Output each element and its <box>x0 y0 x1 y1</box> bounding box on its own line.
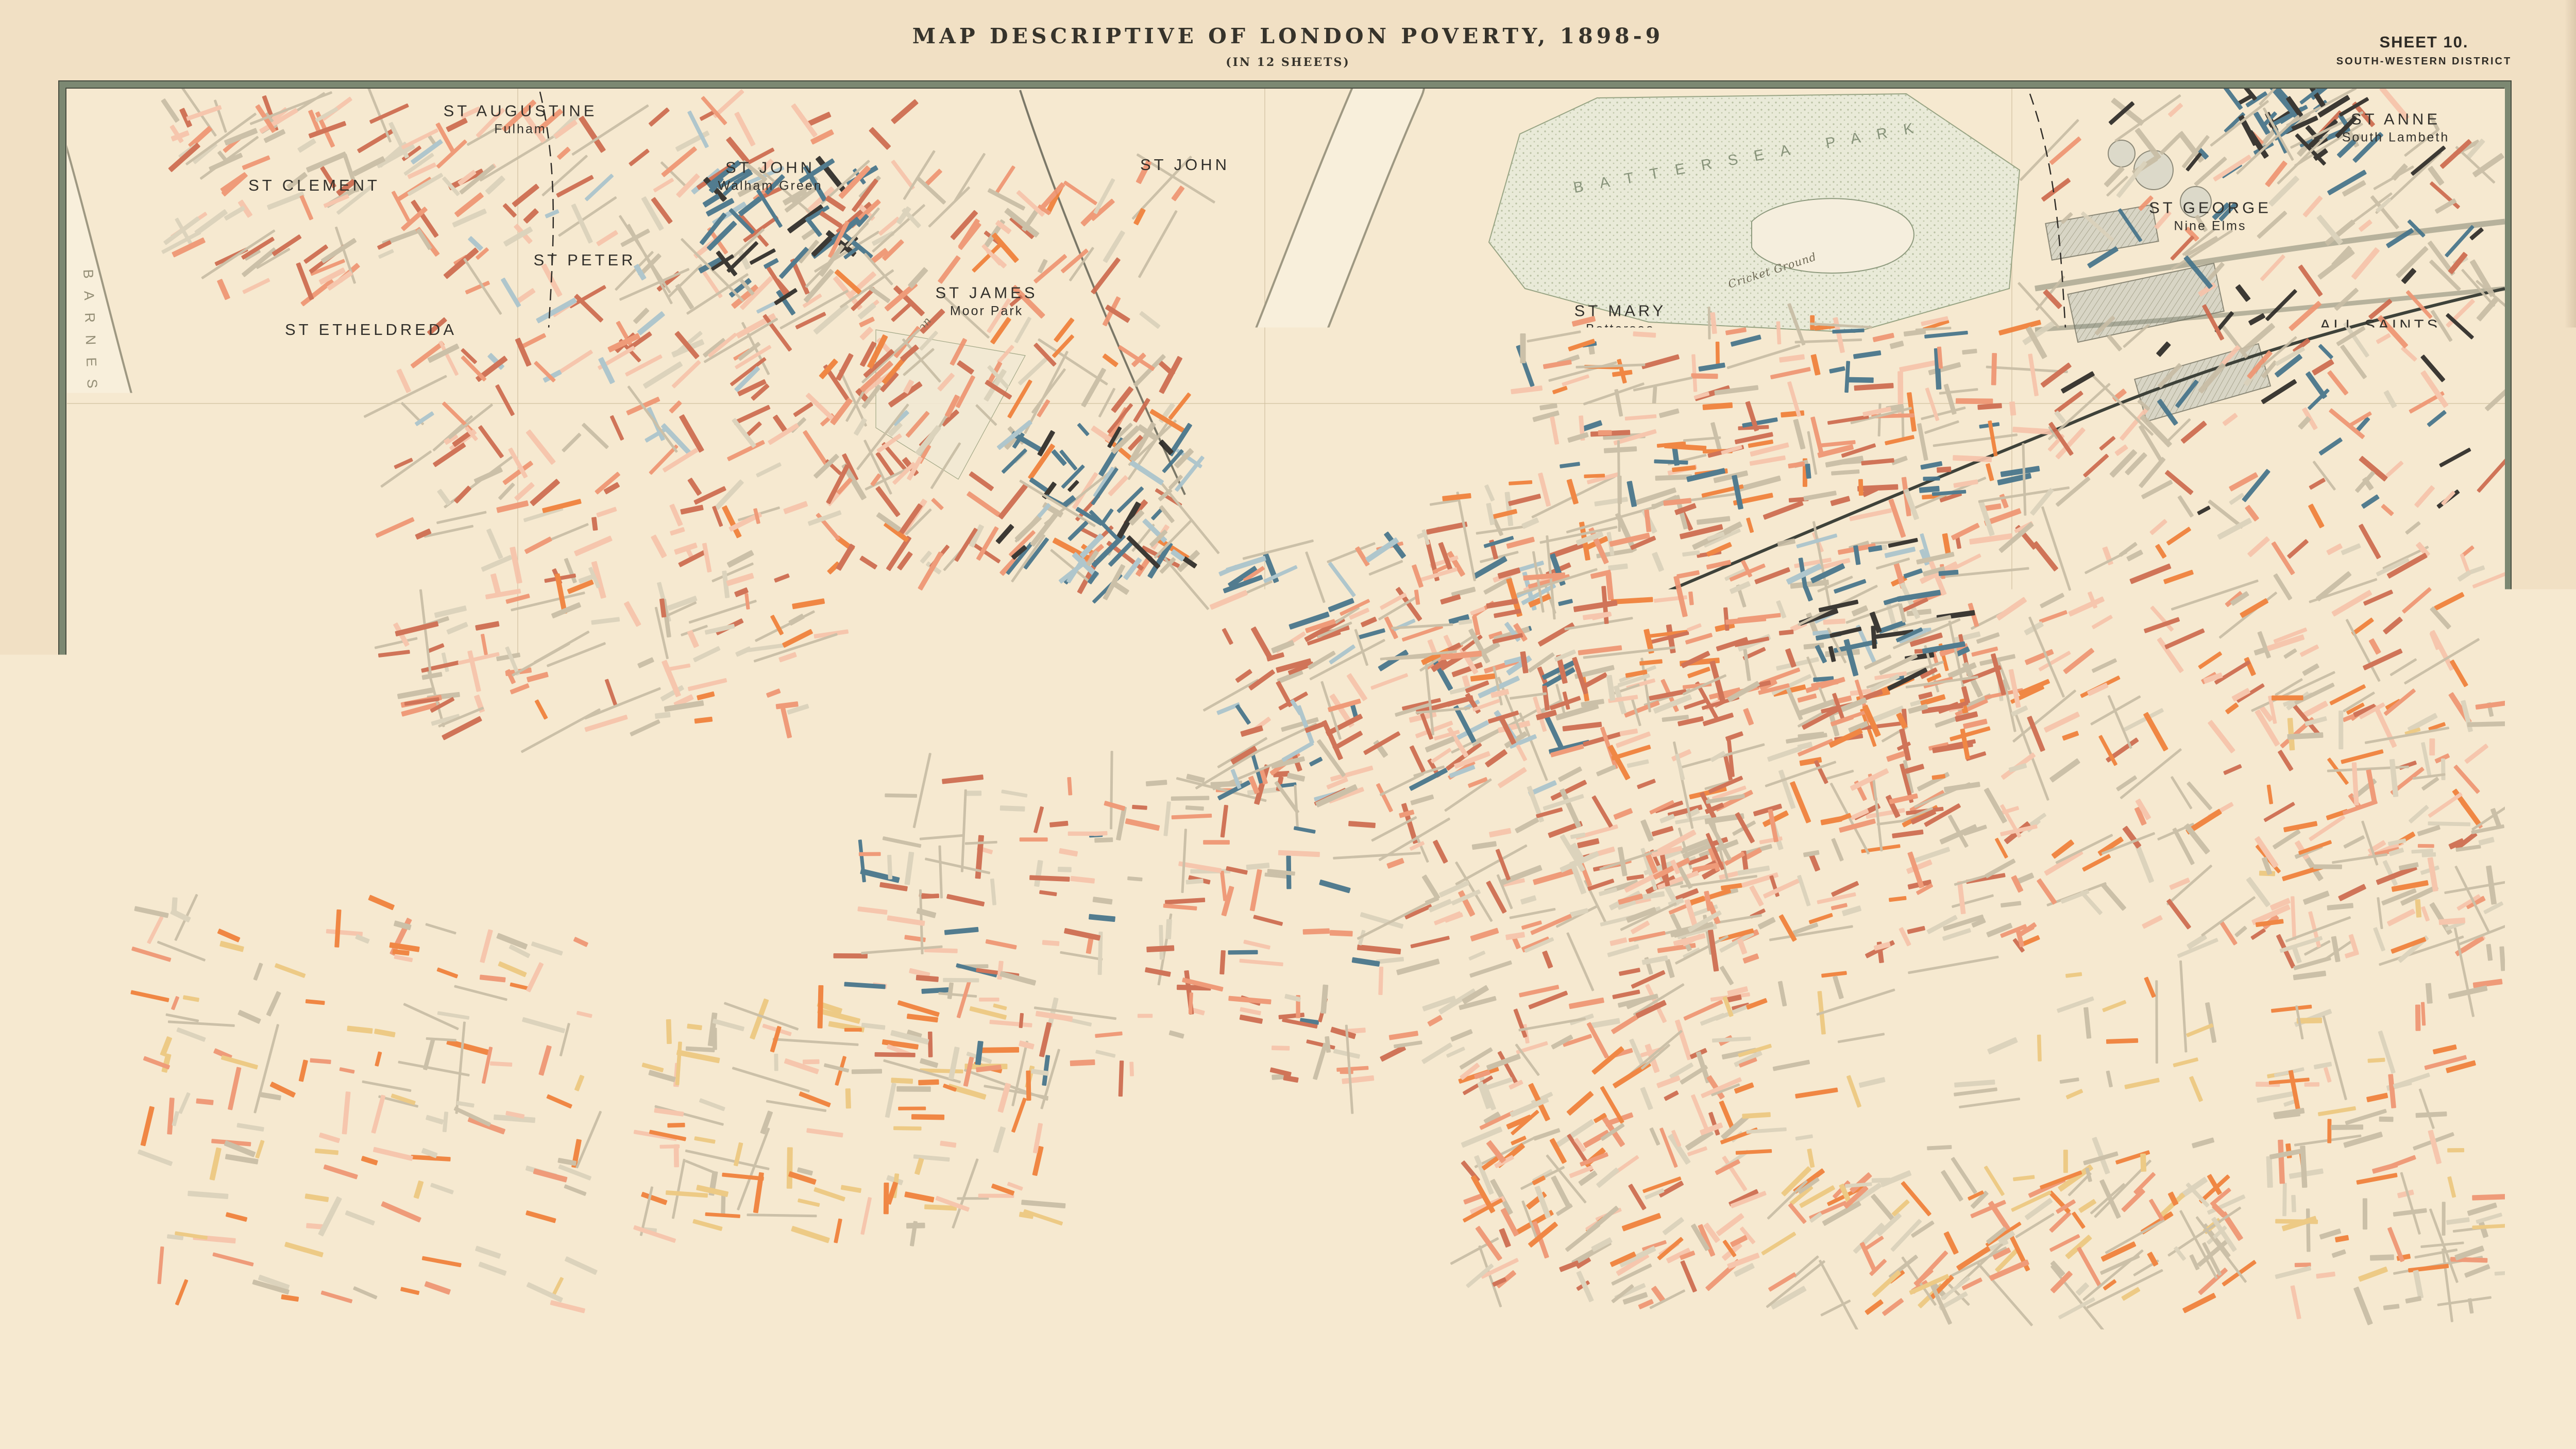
scale-tick <box>474 1355 475 1361</box>
legend-item: Fairly comfortable.Good ordinary earning… <box>1401 1363 1562 1389</box>
class-swatch <box>877 1363 910 1385</box>
street-segment <box>1159 925 1163 960</box>
street-segment <box>1070 1059 1095 1066</box>
street-segment <box>667 1123 685 1128</box>
street-segment <box>1171 796 1210 801</box>
scale-tick <box>608 1355 609 1361</box>
scale-tick-label: 7 <box>538 1343 543 1353</box>
scale-tick <box>340 1355 341 1361</box>
street-segment <box>1129 1062 1134 1076</box>
street-segment <box>911 1114 944 1120</box>
street-segment <box>1272 1046 1290 1051</box>
mile-label: 1 MILE <box>617 1362 648 1373</box>
battersea-park <box>1489 94 2020 332</box>
street-segment <box>979 998 999 1002</box>
scale-tick <box>273 1355 274 1361</box>
street-segment <box>2327 1119 2331 1143</box>
street-segment <box>844 1028 862 1032</box>
street-segment <box>859 852 881 856</box>
scale-tick-label: 1 <box>137 1343 141 1353</box>
scale-tick-label: 8 <box>605 1343 610 1353</box>
street-segment <box>1991 353 1997 385</box>
legend-note: A combination of colours—as dark blue an… <box>0 1401 2576 1413</box>
street-segment <box>896 1086 931 1092</box>
street-segment <box>1165 919 1172 939</box>
street-segment <box>898 1107 926 1110</box>
street-segment <box>1330 930 1353 937</box>
street-segment <box>906 1223 925 1229</box>
legend-item-label: Lowest class.Vicious, semi-criminal. <box>743 1363 856 1389</box>
street-segment <box>1598 430 1612 435</box>
legend-item-label: Upper-middle and Upperclasses. Wealthy. <box>1749 1363 1873 1389</box>
street-segment <box>713 1027 717 1050</box>
street-segment <box>2467 721 2507 727</box>
street-segment <box>787 1147 793 1189</box>
street-segment <box>1228 950 1258 955</box>
legend-item: Lowest class.Vicious, semi-criminal. <box>703 1363 856 1389</box>
class-swatch <box>1401 1363 1434 1385</box>
street-segment <box>1846 377 1874 383</box>
street-segment <box>2155 980 2158 1064</box>
legend-item: Mixed. Some comfortable,others poor. <box>1209 1363 1380 1389</box>
scale-tick-label: 4 <box>337 1343 342 1353</box>
legend-item-label: Poor. 18s. to 21s. a weekfor a moderate … <box>1065 1363 1189 1389</box>
street-segment <box>875 1052 916 1057</box>
street-segment <box>2037 1035 2042 1062</box>
street-segment <box>1026 1070 1031 1101</box>
street-segment <box>943 978 979 983</box>
street-segment <box>2272 695 2303 700</box>
street-segment <box>928 1032 933 1057</box>
class-swatch <box>1708 1363 1741 1385</box>
scale-tick <box>206 1355 207 1361</box>
street-segment <box>918 1080 939 1086</box>
street-segment <box>978 1047 1019 1053</box>
class-swatch <box>1582 1363 1615 1385</box>
street-segment <box>978 1193 1014 1198</box>
street-segment <box>1520 333 1526 363</box>
street-segment <box>1691 373 1718 379</box>
scale-tick-label: 2 <box>204 1343 208 1353</box>
street-segment <box>852 1069 882 1074</box>
street-segment <box>2441 759 2446 780</box>
scale-tick-label: 5 <box>404 1343 409 1353</box>
street-segment <box>818 985 824 1029</box>
street-segment <box>2370 1254 2394 1260</box>
legend-item: Middle class.Well-to-do. <box>1582 1363 1688 1389</box>
legend-item: Poor. 18s. to 21s. a weekfor a moderate … <box>1025 1363 1189 1389</box>
furlongs-label: FURLONGS <box>617 1344 670 1354</box>
scale-tick-label: 6 <box>471 1343 476 1353</box>
street-segment <box>803 1059 820 1065</box>
street-segment <box>1937 466 1952 473</box>
class-swatch <box>1025 1363 1058 1385</box>
street-segment <box>2442 1202 2446 1236</box>
page-edge-shadow <box>2565 0 2576 1449</box>
street-segment <box>1058 867 1072 872</box>
scale-tick-label: 3 <box>270 1343 275 1353</box>
street-segment <box>1858 479 1863 496</box>
scale-bar: FURLONGS 1 MILE 012345678 <box>72 1346 711 1382</box>
street-segment <box>2063 1150 2068 1173</box>
scale-tick <box>407 1355 408 1361</box>
street-segment <box>2140 1154 2146 1172</box>
page-root: MAP DESCRIPTIVE OF LONDON POVERTY, 1898-… <box>0 0 2576 1449</box>
street-segment <box>2304 1082 2320 1087</box>
street-segment <box>893 1126 922 1131</box>
street-segment <box>2363 1198 2367 1229</box>
legend-item: Upper-middle and Upperclasses. Wealthy. <box>1708 1363 1873 1389</box>
street-segment <box>1956 398 1993 405</box>
street-segment <box>1094 837 1113 843</box>
street-segment <box>1923 476 1940 481</box>
street-segment <box>2429 738 2435 755</box>
street-segment <box>1203 840 1230 845</box>
legend-item: Very poor, casual.Chronic want. <box>877 1363 1005 1389</box>
street-segment <box>659 1144 680 1149</box>
street-segment <box>1020 837 1048 841</box>
street-segment <box>2415 1004 2421 1031</box>
boating-lake <box>1752 198 1914 273</box>
street-segment <box>2291 1195 2296 1212</box>
legend-item-label: Fairly comfortable.Good ordinary earning… <box>1441 1363 1562 1389</box>
street-segment <box>2266 1156 2273 1188</box>
street-segment <box>2331 1124 2363 1130</box>
street-segment <box>2313 864 2342 869</box>
street-segment <box>774 1054 778 1071</box>
map-canvas <box>0 0 2576 1449</box>
scale-tick <box>72 1355 73 1361</box>
attribution: Stanford's Geogˡ. Estabᵗ., London. <box>2259 1341 2489 1355</box>
street-segment <box>1716 342 1720 366</box>
street-segment <box>1708 307 1711 340</box>
street-segment <box>1068 832 1098 836</box>
street-segment <box>1303 928 1330 934</box>
street-segment <box>2418 844 2434 848</box>
class-swatch <box>1209 1363 1242 1385</box>
scale-tick <box>541 1355 542 1361</box>
scale-tick <box>139 1355 140 1361</box>
street-segment <box>2379 1117 2394 1122</box>
street-segment <box>2447 1148 2464 1153</box>
street-segment <box>2282 1183 2286 1216</box>
street-segment <box>2338 711 2343 749</box>
street-segment <box>921 894 939 899</box>
street-segment <box>2422 852 2436 857</box>
legend-item-label: Very poor, casual.Chronic want. <box>917 1363 1005 1389</box>
street-segment <box>1872 1177 1891 1183</box>
scale-tick-label: 0 <box>70 1343 74 1353</box>
legend-item-label: Middle class.Well-to-do. <box>1622 1363 1688 1389</box>
street-segment <box>845 1088 851 1108</box>
street-segment <box>666 1019 672 1044</box>
street-segment <box>1138 1014 1153 1018</box>
legend-item-label: Mixed. Some comfortable,others poor. <box>1249 1363 1380 1389</box>
street-segment <box>2306 1208 2311 1252</box>
street-segment <box>1378 967 1383 995</box>
